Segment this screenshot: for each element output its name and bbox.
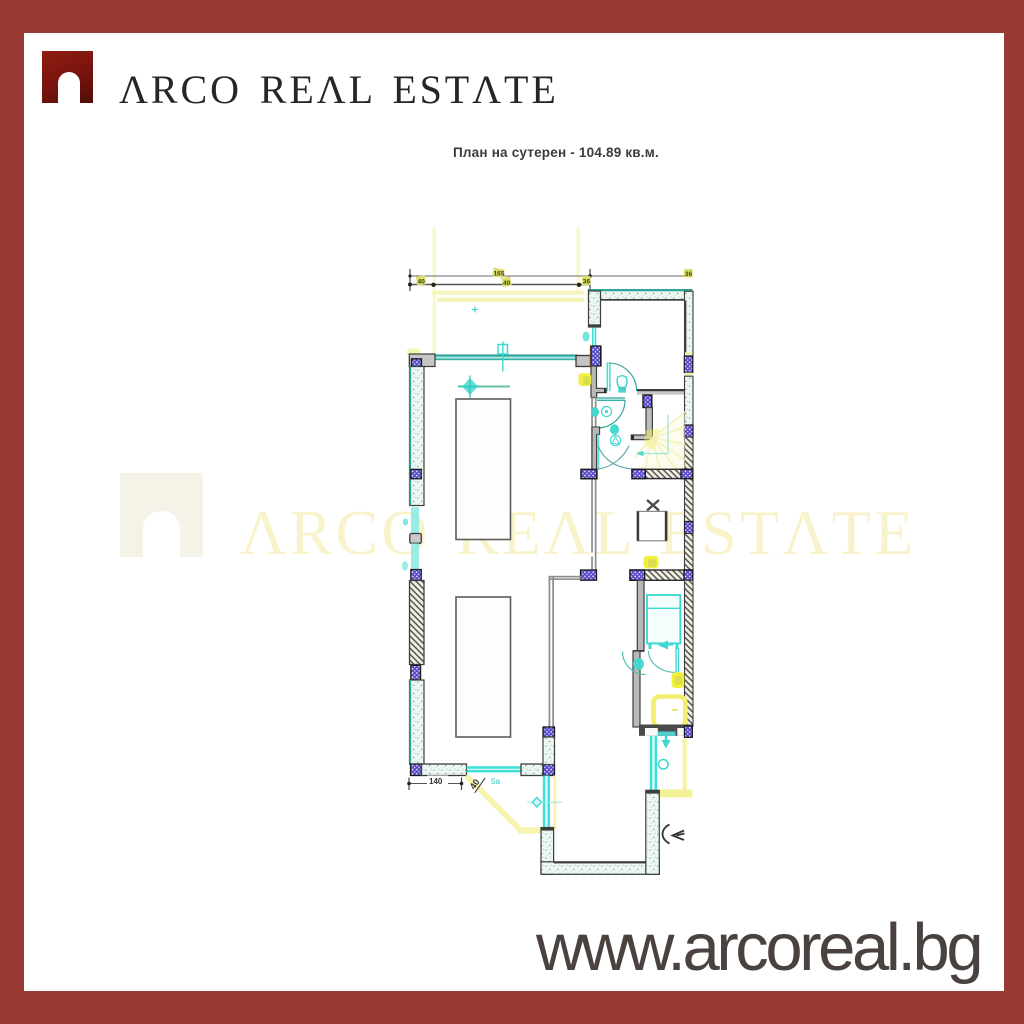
svg-text:5a: 5a <box>491 777 500 786</box>
svg-text:36: 36 <box>583 279 591 286</box>
svg-text:36: 36 <box>685 271 693 278</box>
svg-text:40: 40 <box>418 279 426 286</box>
svg-text:140: 140 <box>429 777 443 786</box>
svg-text:165: 165 <box>494 271 505 278</box>
svg-text:40: 40 <box>503 280 511 287</box>
